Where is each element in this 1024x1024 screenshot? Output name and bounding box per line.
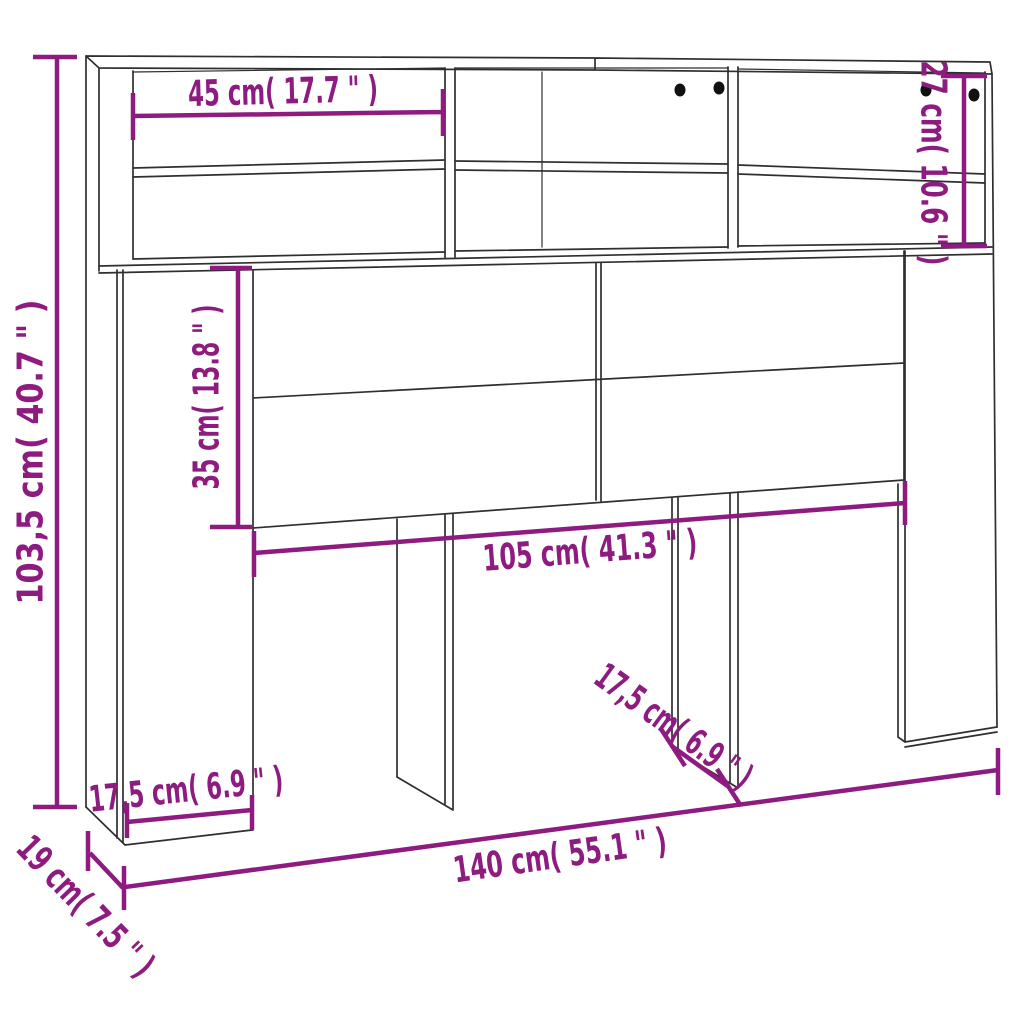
- dim-panel-height: 35 cm( 13.8 " ): [187, 268, 252, 527]
- dim-mid-leg-depth: 17,5 cm( 6.9 " ): [586, 656, 760, 806]
- drill-hole-dot: [714, 82, 725, 95]
- dim-hutch-height-label: 27 cm( 10.6 " ): [912, 61, 953, 266]
- dim-base-depth-line: [88, 831, 123, 888]
- drill-hole-dot: [969, 89, 980, 102]
- dim-overall-height-label: 103,5 cm( 40.7 " ): [11, 300, 52, 605]
- dim-mid-leg-depth-label: 17,5 cm( 6.9 " ): [586, 656, 760, 798]
- left-side-panel: [86, 56, 133, 807]
- middle-left-leg: [397, 514, 453, 810]
- right-side-panel: [985, 72, 997, 727]
- drill-hole-dot: [675, 84, 686, 97]
- right-column-leg: [898, 251, 997, 747]
- dim-panel-width: 105 cm( 41.3 " ): [254, 481, 905, 580]
- dim-base-depth: 19 cm( 7.5 " ): [8, 828, 163, 986]
- dimension-annotations: 103,5 cm( 40.7 " ) 45 cm( 17.7 " ) 27 cm…: [8, 57, 998, 986]
- diagram-canvas: 103,5 cm( 40.7 " ) 45 cm( 17.7 " ) 27 cm…: [0, 0, 1024, 1024]
- dim-overall-width-label: 140 cm( 55.1 " ): [451, 821, 670, 892]
- dim-base-depth-label: 19 cm( 7.5 " ): [8, 828, 163, 986]
- hutch-shelves: [133, 160, 985, 183]
- dim-shelf-width-label: 45 cm( 17.7 " ): [188, 69, 379, 115]
- dim-overall-height: 103,5 cm( 40.7 " ): [11, 57, 77, 807]
- dim-panel-height-label: 35 cm( 13.8 " ): [187, 305, 228, 490]
- dim-shelf-width: 45 cm( 17.7 " ): [133, 69, 443, 140]
